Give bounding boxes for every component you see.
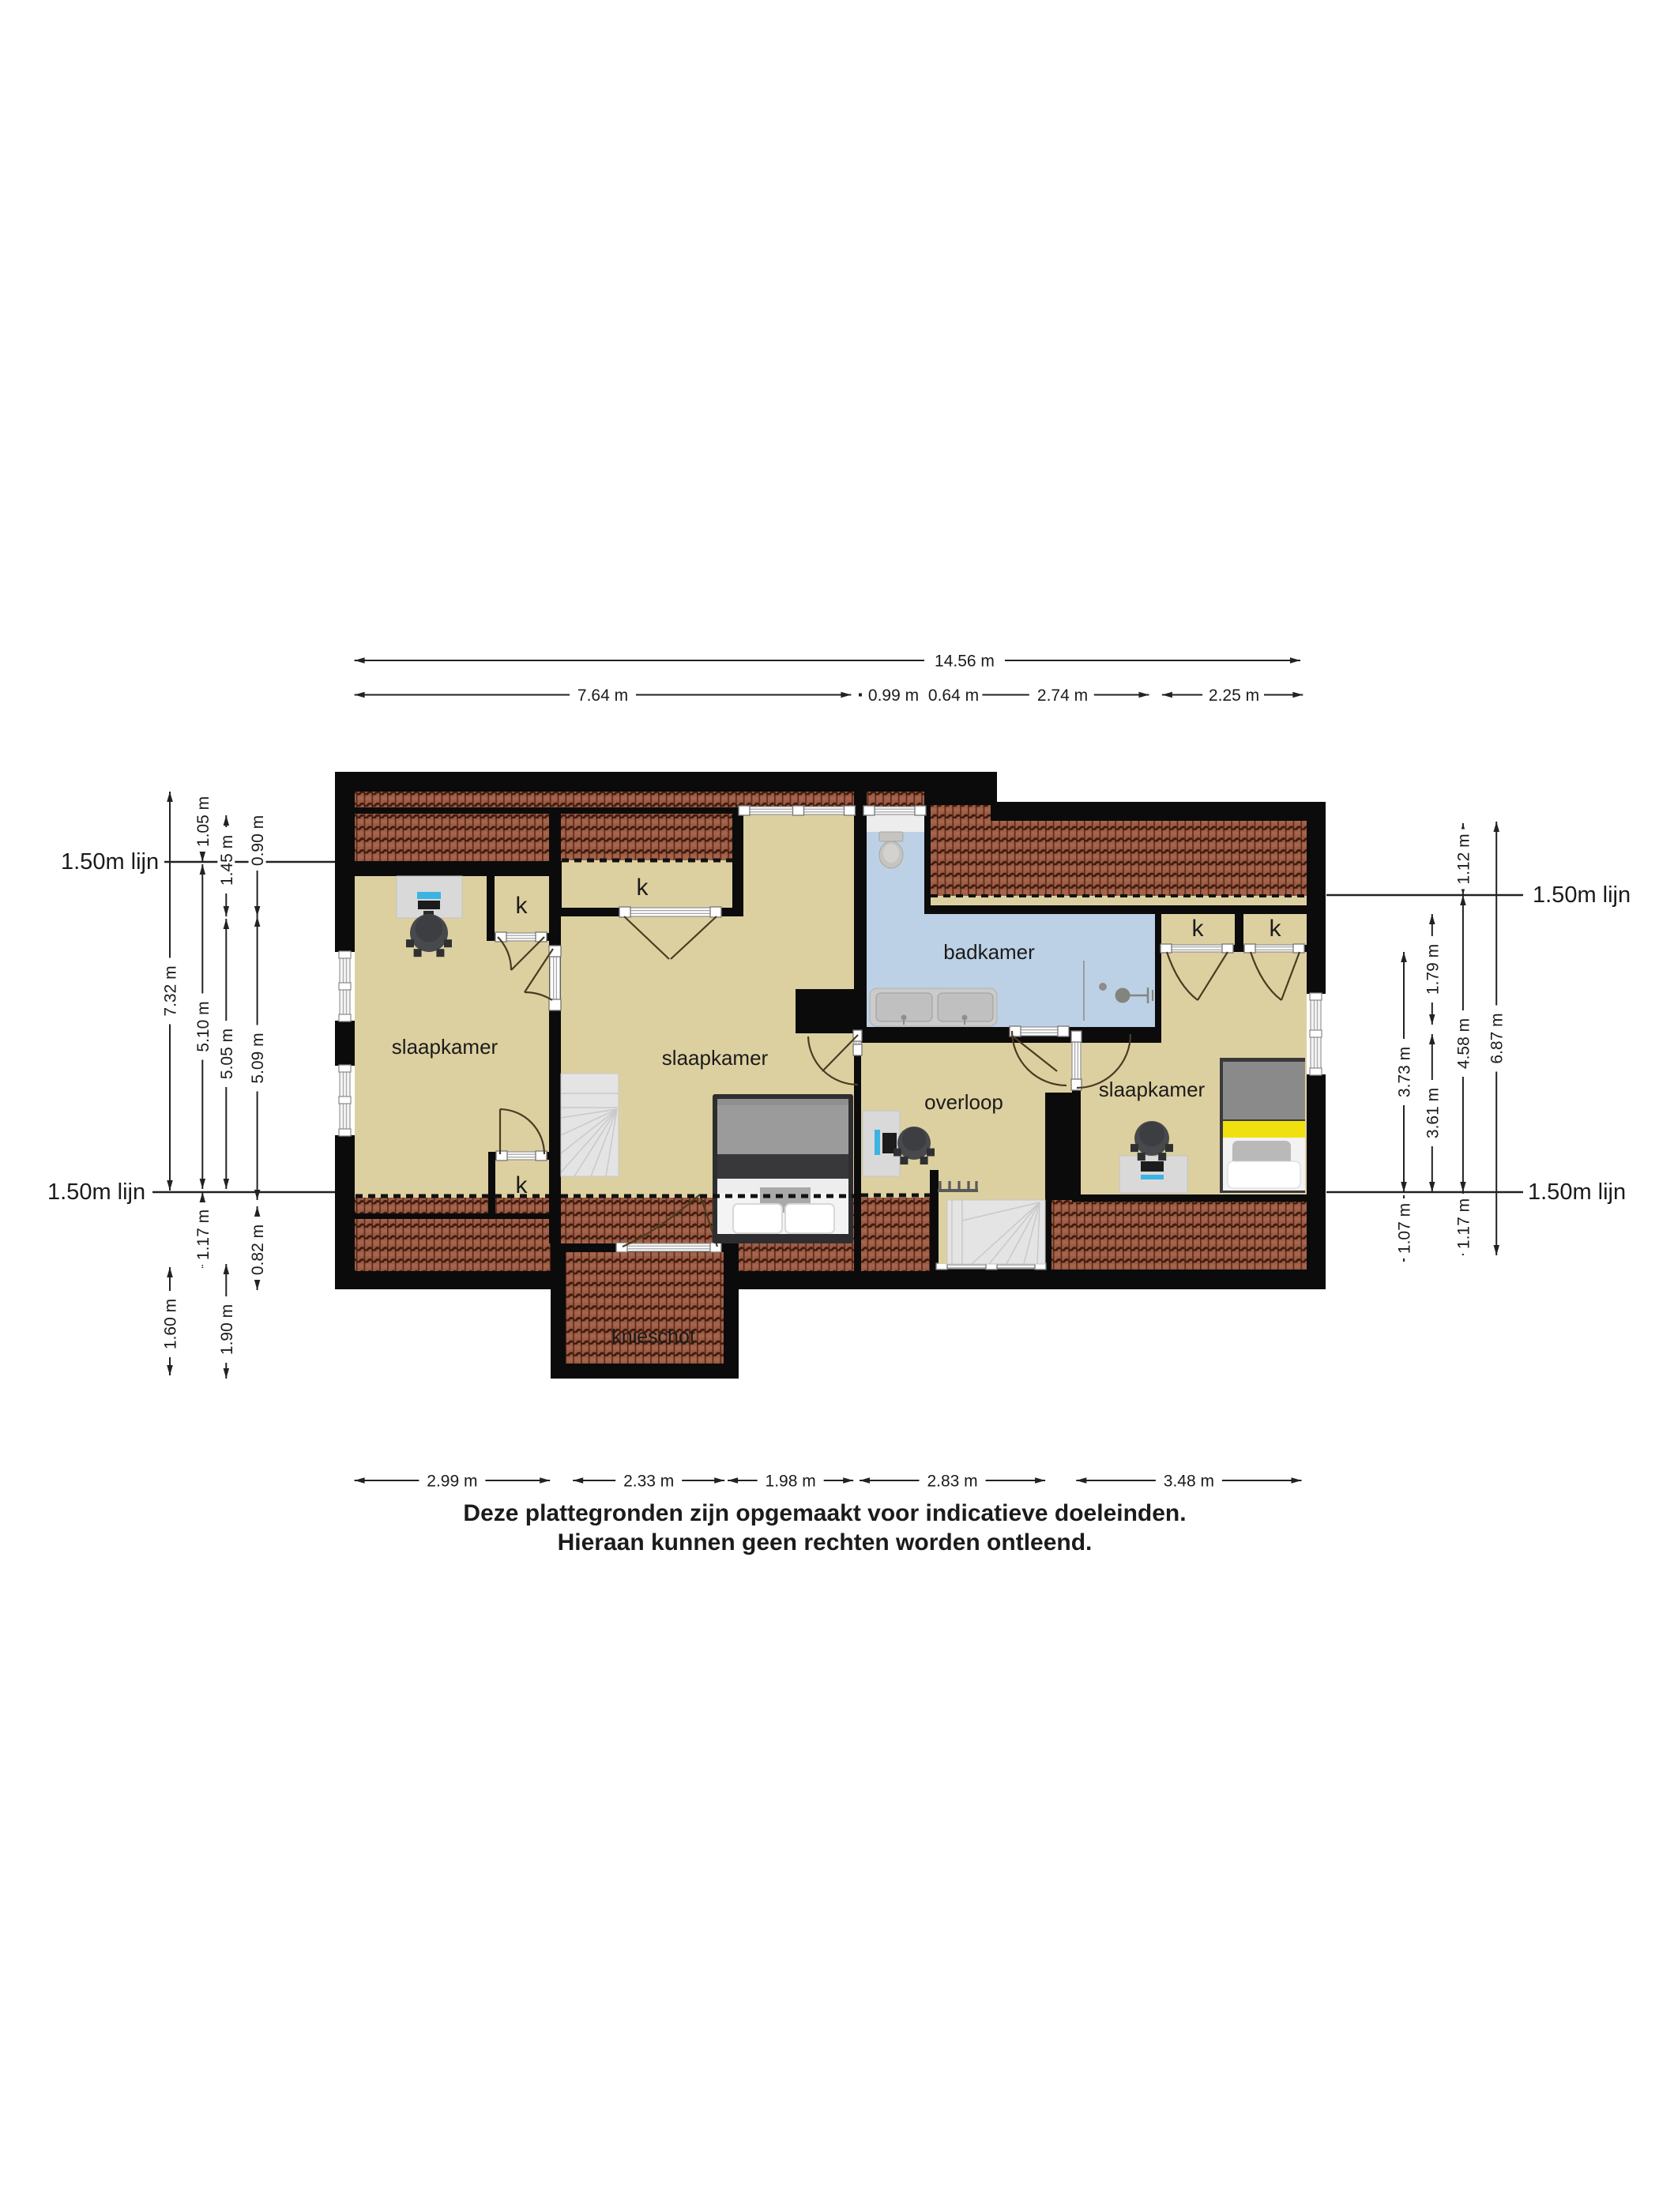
- svg-text:3.48 m: 3.48 m: [1164, 1473, 1214, 1491]
- svg-text:1.50m lijn: 1.50m lijn: [1533, 882, 1631, 908]
- svg-text:4.58 m: 4.58 m: [1454, 1018, 1473, 1069]
- svg-text:0.64 m: 0.64 m: [928, 687, 979, 705]
- svg-text:1.17 m: 1.17 m: [1454, 1198, 1473, 1249]
- svg-text:1.50m lijn: 1.50m lijn: [1528, 1179, 1626, 1205]
- svg-text:0.99 m: 0.99 m: [868, 687, 919, 705]
- svg-text:2.99 m: 2.99 m: [427, 1473, 477, 1491]
- svg-text:5.05 m: 5.05 m: [218, 1029, 236, 1079]
- svg-text:5.09 m: 5.09 m: [249, 1033, 267, 1083]
- svg-text:1.79 m: 1.79 m: [1424, 944, 1442, 995]
- svg-text:3.73 m: 3.73 m: [1396, 1047, 1414, 1097]
- svg-text:Deze plattegronden zijn opgema: Deze plattegronden zijn opgemaakt voor i…: [463, 1500, 1186, 1526]
- svg-text:1.60 m: 1.60 m: [162, 1299, 180, 1349]
- svg-text:2.83 m: 2.83 m: [927, 1473, 977, 1491]
- svg-text:6.87 m: 6.87 m: [1488, 1013, 1507, 1063]
- svg-text:5.10 m: 5.10 m: [194, 1001, 213, 1051]
- svg-text:badkamer: badkamer: [943, 940, 1035, 964]
- svg-text:slaapkamer: slaapkamer: [392, 1035, 498, 1059]
- svg-text:1.07 m: 1.07 m: [1396, 1203, 1414, 1254]
- svg-text:k: k: [637, 875, 649, 901]
- svg-text:14.56 m: 14.56 m: [935, 653, 995, 671]
- svg-text:1.05 m: 1.05 m: [194, 796, 213, 847]
- svg-text:1.45 m: 1.45 m: [218, 835, 236, 886]
- svg-text:3.61 m: 3.61 m: [1424, 1088, 1442, 1138]
- svg-text:7.32 m: 7.32 m: [162, 965, 180, 1016]
- svg-text:k: k: [516, 1172, 529, 1198]
- svg-text:slaapkamer: slaapkamer: [662, 1046, 769, 1070]
- svg-text:0.90 m: 0.90 m: [249, 815, 267, 866]
- svg-text:1.90 m: 1.90 m: [218, 1304, 236, 1355]
- svg-text:1.50m lijn: 1.50m lijn: [61, 849, 159, 875]
- svg-text:1.17 m: 1.17 m: [194, 1209, 213, 1260]
- svg-text:k: k: [516, 893, 529, 919]
- svg-text:1.12 m: 1.12 m: [1454, 833, 1473, 884]
- svg-text:Hieraan kunnen geen rechten wo: Hieraan kunnen geen rechten worden ontle…: [558, 1529, 1093, 1556]
- svg-text:2.74 m: 2.74 m: [1037, 687, 1088, 705]
- svg-text:1.50m lijn: 1.50m lijn: [47, 1179, 145, 1205]
- svg-text:2.25 m: 2.25 m: [1209, 687, 1259, 705]
- svg-text:knieschot: knieschot: [611, 1326, 695, 1348]
- svg-text:7.64 m: 7.64 m: [577, 687, 628, 705]
- svg-text:k: k: [1192, 916, 1205, 942]
- svg-text:slaapkamer: slaapkamer: [1099, 1078, 1206, 1101]
- svg-text:k: k: [1270, 916, 1282, 942]
- svg-text:2.33 m: 2.33 m: [623, 1473, 674, 1491]
- svg-text:overloop: overloop: [924, 1090, 1003, 1114]
- svg-text:0.82 m: 0.82 m: [249, 1224, 267, 1275]
- svg-text:1.98 m: 1.98 m: [766, 1473, 816, 1491]
